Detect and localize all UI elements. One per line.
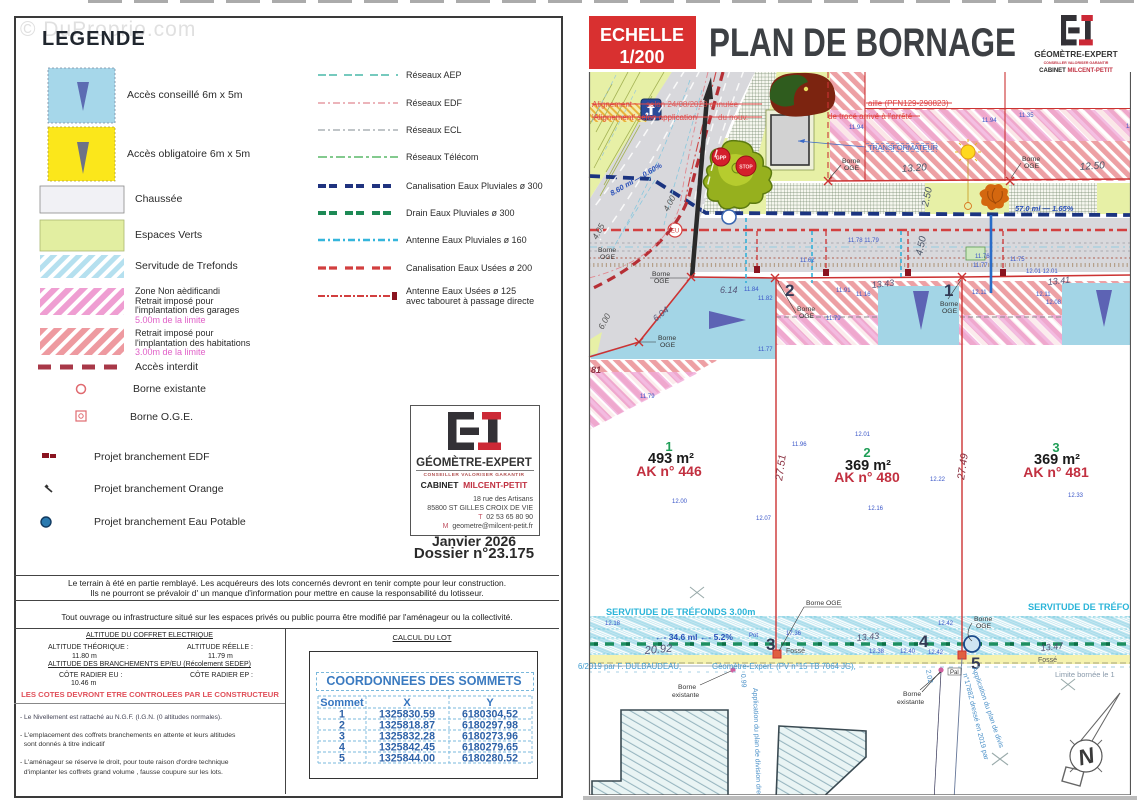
svg-text:aille (PFN129-290823): aille (PFN129-290823) bbox=[868, 99, 949, 108]
svg-text:12.01 12.01: 12.01 12.01 bbox=[1026, 269, 1058, 275]
svg-text:12.07: 12.07 bbox=[756, 516, 772, 522]
svg-text:n°1788Z dressé en 2019 par: n°1788Z dressé en 2019 par bbox=[961, 673, 990, 762]
svg-text:12.42: 12.42 bbox=[938, 621, 954, 627]
svg-text:OGE: OGE bbox=[660, 342, 676, 349]
svg-text:Application du plan de divisio: Application du plan de division dressé e… bbox=[751, 688, 764, 800]
svg-text:AK n° 446: AK n° 446 bbox=[636, 463, 702, 479]
svg-text:PLAN DE BORNAGE: PLAN DE BORNAGE bbox=[709, 21, 1016, 65]
svg-text:20.92: 20.92 bbox=[643, 643, 672, 657]
svg-text:Sommet: Sommet bbox=[320, 697, 364, 709]
svg-text:11.96: 11.96 bbox=[792, 442, 807, 448]
svg-text:11.77: 11.77 bbox=[973, 263, 988, 269]
svg-text:11.94: 11.94 bbox=[982, 118, 997, 124]
svg-text:12.16: 12.16 bbox=[868, 506, 884, 512]
svg-text:ECHELLE: ECHELLE bbox=[600, 25, 684, 45]
svg-text:11.75: 11.75 bbox=[1010, 257, 1025, 263]
svg-text:Y: Y bbox=[486, 697, 494, 709]
svg-text:11.35: 11.35 bbox=[1019, 113, 1034, 119]
svg-text:Borne: Borne bbox=[842, 158, 860, 165]
svg-text:1325844.00: 1325844.00 bbox=[379, 753, 435, 765]
svg-text:GÉOMÈTRE-EXPERT: GÉOMÈTRE-EXPERT bbox=[1034, 49, 1117, 59]
svg-text:OGE: OGE bbox=[942, 308, 958, 315]
svg-text:Borne: Borne bbox=[903, 691, 921, 698]
svg-text:11.79: 11.79 bbox=[826, 316, 841, 322]
svg-text:Borne: Borne bbox=[652, 271, 670, 278]
svg-text:11.16: 11.16 bbox=[856, 292, 871, 298]
svg-text:11.78 11.79: 11.78 11.79 bbox=[848, 238, 879, 244]
svg-text:de tracé arrivé à l'arrêté: de tracé arrivé à l'arrêté bbox=[828, 112, 913, 121]
svg-text:CONSEILLER VALORISER GARANTIR: CONSEILLER VALORISER GARANTIR bbox=[1044, 61, 1109, 65]
svg-text:X: X bbox=[403, 697, 411, 709]
svg-text:11.77: 11.77 bbox=[758, 347, 773, 353]
svg-text:11.94: 11.94 bbox=[849, 125, 864, 131]
svg-text:GPP: GPP bbox=[716, 156, 727, 162]
svg-text:12.11: 12.11 bbox=[972, 290, 987, 296]
svg-text:6.14: 6.14 bbox=[720, 285, 738, 295]
svg-text:AK n° 480: AK n° 480 bbox=[834, 469, 900, 485]
svg-text:STOP: STOP bbox=[739, 165, 753, 171]
svg-text:11.84: 11.84 bbox=[744, 287, 759, 293]
svg-text:Limite bornée le 1: Limite bornée le 1 bbox=[1055, 670, 1115, 679]
svg-text:11.79: 11.79 bbox=[640, 394, 655, 400]
svg-text:3: 3 bbox=[766, 635, 775, 654]
svg-text:existante: existante bbox=[897, 699, 924, 706]
svg-text:TRANSFORMATEUR: TRANSFORMATEUR bbox=[868, 143, 939, 152]
svg-text:SERVITUDE DE TRÉFONDS 3.00m: SERVITUDE DE TRÉFONDS 3.00m bbox=[606, 606, 755, 617]
svg-text:12.22: 12.22 bbox=[930, 477, 946, 483]
svg-text:OGE: OGE bbox=[1024, 163, 1040, 170]
svg-text:Alignement: Alignement bbox=[592, 100, 633, 109]
svg-text:6/2019 par F. DULBAUDEAU,: 6/2019 par F. DULBAUDEAU, bbox=[578, 662, 681, 671]
svg-text:Borne: Borne bbox=[940, 301, 958, 308]
svg-text:12.42: 12.42 bbox=[928, 650, 944, 656]
svg-text:'Alignement' selon applicati: 'Alignement' selon application bbox=[592, 113, 697, 122]
svg-text:selon 24/08/2023 annulée: selon 24/08/2023 annulée bbox=[646, 100, 739, 109]
svg-text:Borne: Borne bbox=[658, 335, 676, 342]
svg-text:OGE: OGE bbox=[844, 165, 860, 172]
svg-text:11.62: 11.62 bbox=[800, 258, 815, 264]
svg-text:12.40: 12.40 bbox=[900, 649, 916, 655]
svg-text:11.76: 11.76 bbox=[975, 254, 990, 260]
svg-text:2: 2 bbox=[785, 281, 794, 300]
svg-text:5: 5 bbox=[339, 753, 345, 765]
svg-text:SERVITUDE DE TRÉFONDS: SERVITUDE DE TRÉFONDS bbox=[1028, 601, 1137, 612]
svg-text:1/200: 1/200 bbox=[619, 47, 664, 67]
svg-text:OGE: OGE bbox=[799, 313, 815, 320]
svg-text:Géomètre-Expert. (PV n°15 TB 7: Géomètre-Expert. (PV n°15 TB 7064 JG), bbox=[712, 662, 856, 671]
svg-text:Borne: Borne bbox=[598, 247, 616, 254]
svg-text:Borne: Borne bbox=[678, 684, 696, 691]
svg-text:4: 4 bbox=[919, 632, 929, 651]
svg-text:Borne: Borne bbox=[797, 306, 815, 313]
svg-text:2.02: 2.02 bbox=[924, 669, 933, 684]
svg-text:12.50: 12.50 bbox=[1079, 160, 1105, 173]
svg-text:12.11: 12.11 bbox=[1036, 292, 1051, 298]
svg-text:existante: existante bbox=[672, 692, 699, 699]
svg-text:←- 34.6 ml ←- 5.2%: ←- 34.6 ml ←- 5.2% bbox=[655, 632, 733, 642]
svg-text:12.08: 12.08 bbox=[1046, 300, 1062, 306]
svg-text:11.91: 11.91 bbox=[836, 288, 851, 294]
svg-text:12.18: 12.18 bbox=[605, 621, 621, 627]
svg-text:Borne OGE: Borne OGE bbox=[806, 600, 842, 607]
svg-text:13.20: 13.20 bbox=[901, 162, 927, 175]
svg-text:81: 81 bbox=[591, 365, 601, 375]
svg-text:Borne: Borne bbox=[974, 616, 992, 623]
svg-text:Fossé: Fossé bbox=[1038, 657, 1057, 664]
svg-text:17.36: 17.36 bbox=[786, 631, 802, 637]
svg-text:12.38: 12.38 bbox=[869, 649, 885, 655]
svg-text:AK n° 481: AK n° 481 bbox=[1023, 464, 1089, 480]
svg-text:OGE: OGE bbox=[600, 254, 616, 261]
svg-text:OGE: OGE bbox=[654, 278, 670, 285]
svg-text:OGE: OGE bbox=[976, 623, 992, 630]
svg-text:Fossé: Fossé bbox=[786, 648, 805, 655]
svg-text:Pot: Pot bbox=[749, 633, 758, 639]
svg-text:12.01: 12.01 bbox=[855, 432, 871, 438]
svg-text:11.82: 11.82 bbox=[758, 296, 773, 302]
svg-text:57.0 ml — 1.65%: 57.0 ml — 1.65% bbox=[1015, 204, 1074, 213]
svg-text:12.00: 12.00 bbox=[672, 499, 688, 505]
svg-text:Borne: Borne bbox=[1022, 156, 1040, 163]
svg-text:0.99: 0.99 bbox=[739, 674, 747, 688]
svg-text:1: 1 bbox=[944, 281, 953, 300]
svg-text:12.33: 12.33 bbox=[1068, 493, 1084, 499]
svg-text:6180280.52: 6180280.52 bbox=[462, 753, 518, 765]
svg-text:du nouv.: du nouv. bbox=[718, 113, 748, 122]
